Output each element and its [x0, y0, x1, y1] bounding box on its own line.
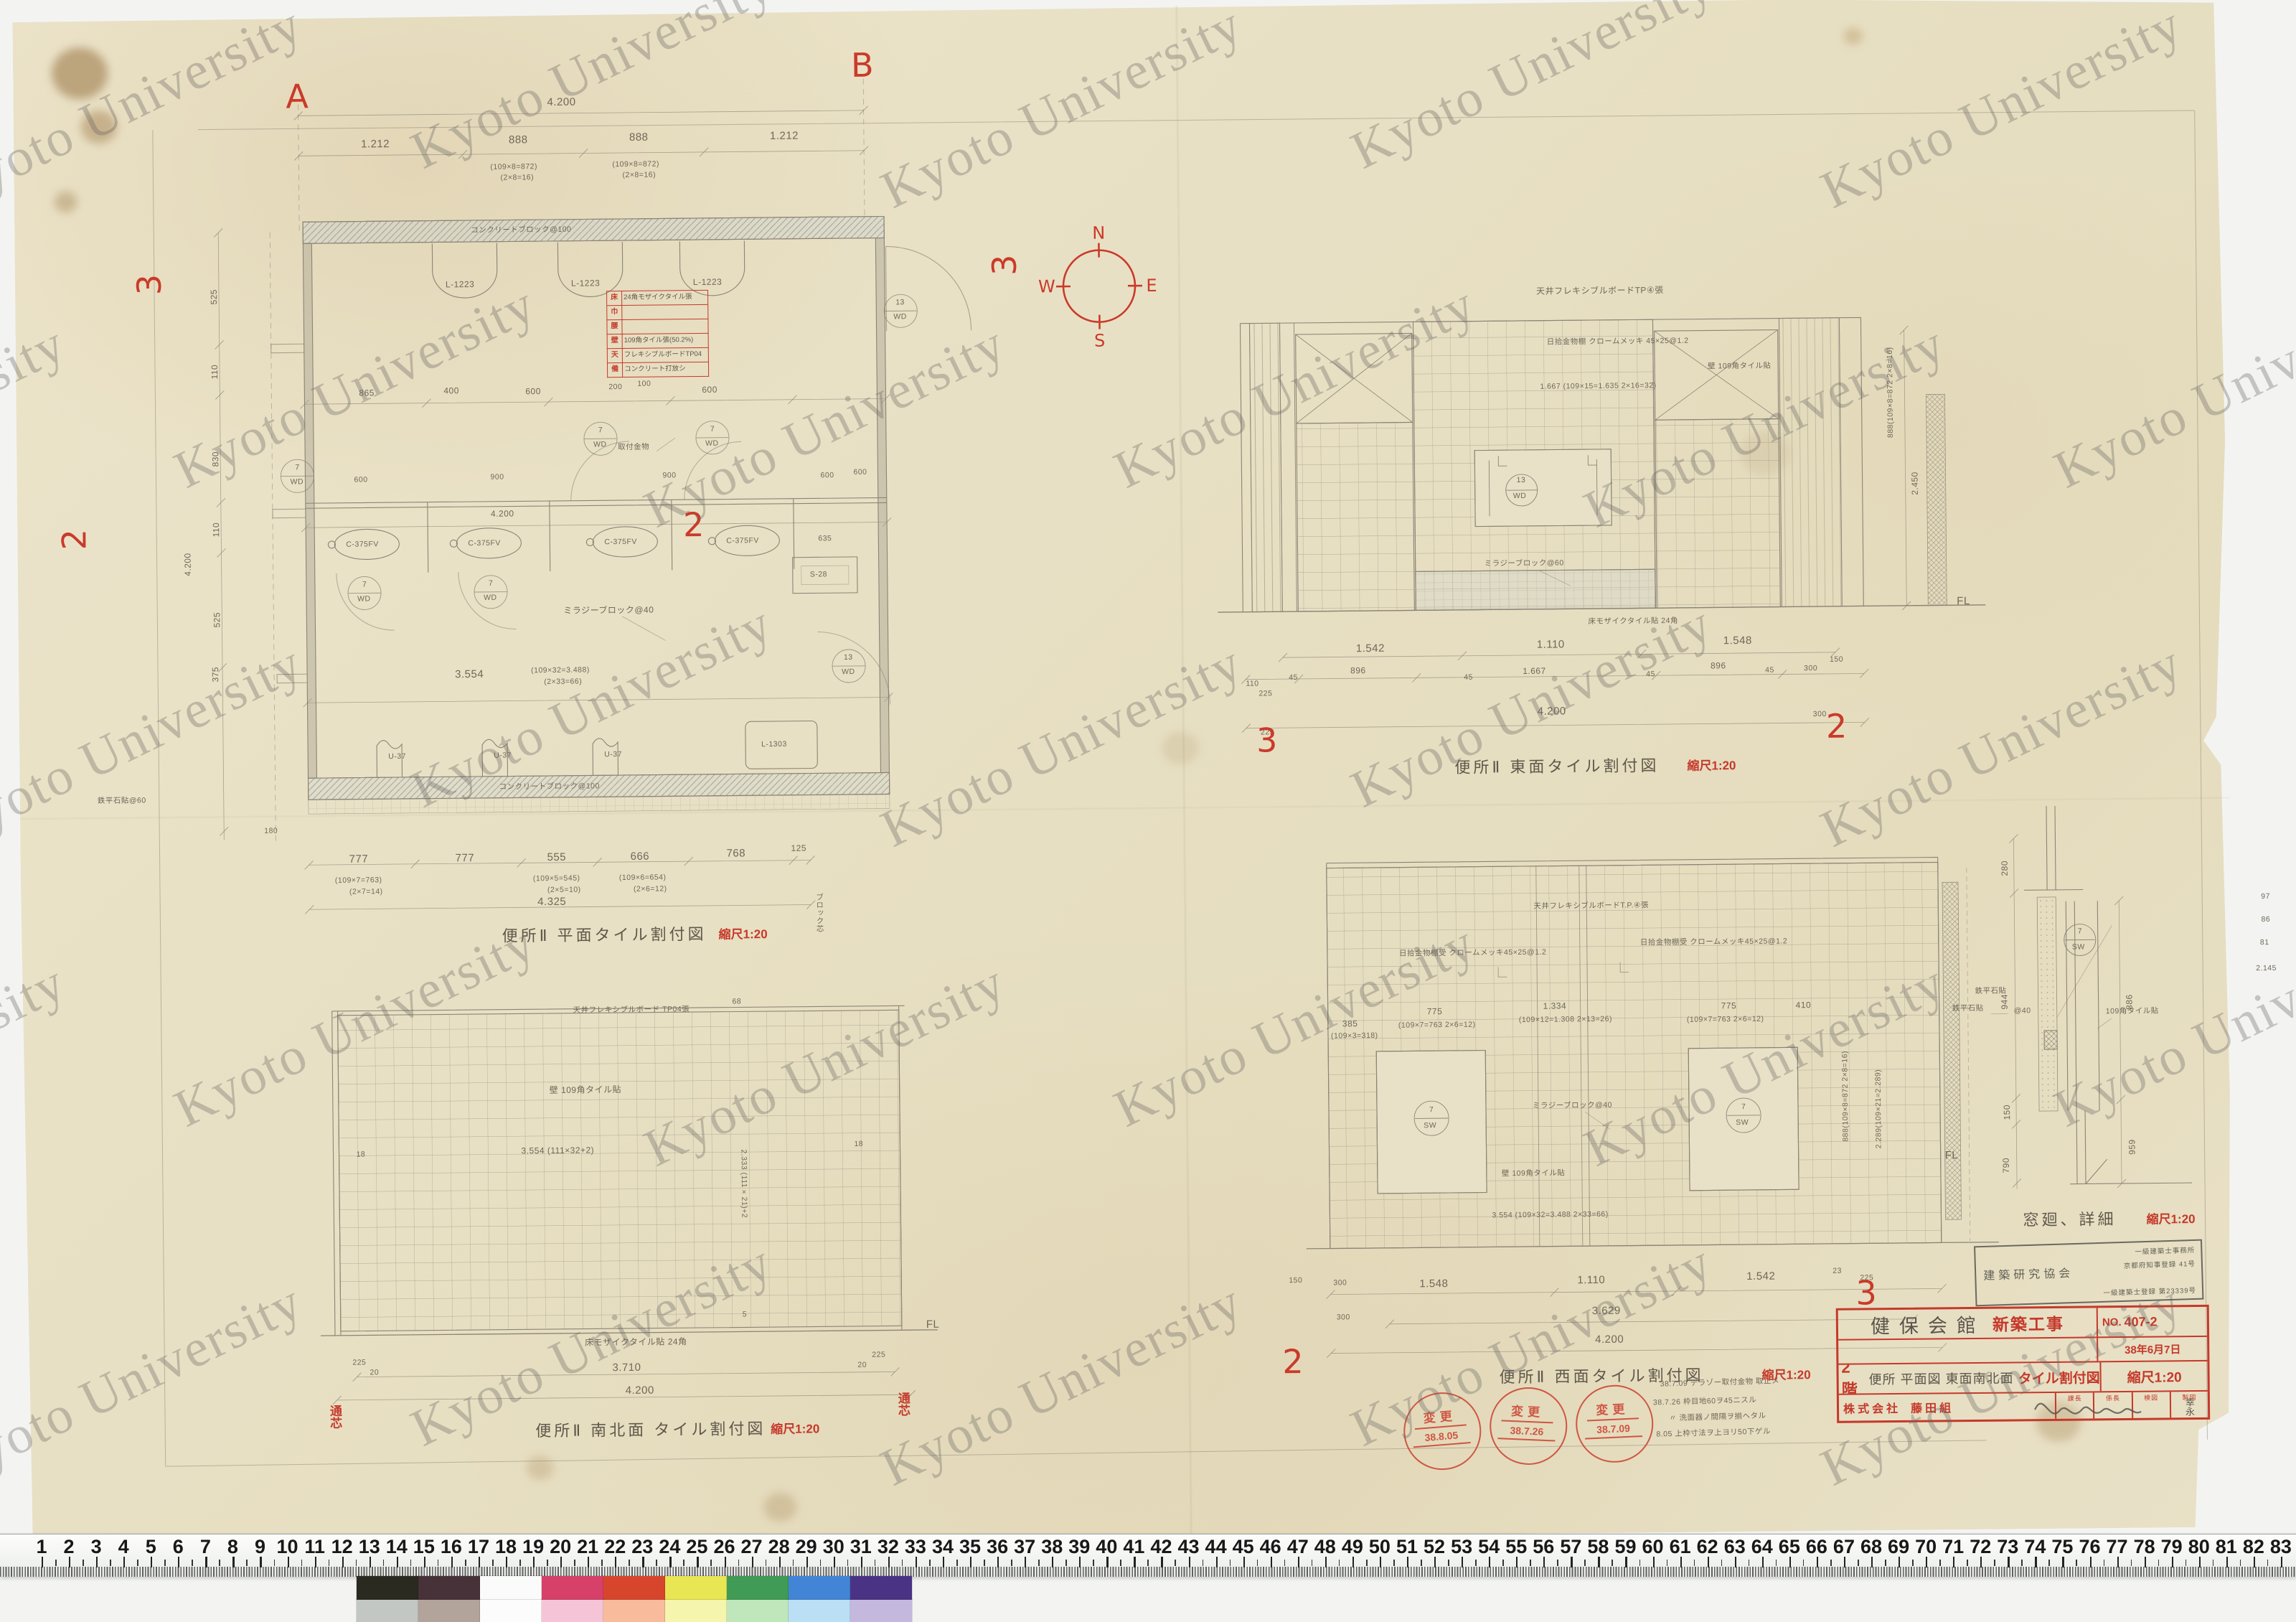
fixture-label: U-37	[388, 752, 406, 761]
ruler-half-tick	[383, 1560, 385, 1566]
ruler-half-tick	[766, 1560, 767, 1566]
fixture-label: L-1223	[571, 278, 601, 288]
color-patch	[850, 1600, 912, 1622]
fixture-label: S-28	[810, 570, 827, 578]
ruler-cm-tick	[1953, 1557, 1954, 1567]
ruler-cm-tick	[1516, 1557, 1518, 1567]
ruler-half-tick	[2158, 1560, 2160, 1566]
ruler-half-tick	[219, 1560, 220, 1566]
schedule-row: 壁109角タイル張(50.2%)	[607, 334, 709, 349]
ruler-half-tick	[2048, 1560, 2050, 1566]
schedule-header: 備	[608, 363, 623, 377]
note-label: 取付金物	[618, 441, 649, 452]
ruler-cm-tick	[1899, 1557, 1900, 1567]
scale-label: 縮尺1:20	[2146, 1209, 2195, 1227]
ruler-half-tick	[2267, 1560, 2269, 1566]
ruler-cm-tick	[1489, 1557, 1490, 1567]
ruler-half-tick	[1339, 1560, 1340, 1566]
door-tag: SW	[1736, 1118, 1749, 1127]
ruler-half-tick	[656, 1560, 657, 1566]
door-tag: SW	[2072, 942, 2085, 951]
ruler-cm-tick	[669, 1557, 671, 1567]
dim-label: 944	[2000, 994, 2010, 1010]
ruler-cm-tick	[1735, 1557, 1736, 1567]
dim-label: 1.110	[1577, 1274, 1605, 1286]
ruler-half-tick	[410, 1560, 412, 1566]
ruler-half-tick	[820, 1560, 822, 1566]
ruler-half-tick	[1694, 1560, 1695, 1566]
color-patch	[542, 1600, 603, 1622]
dim-label: 110	[210, 365, 220, 380]
ruler-half-tick	[2213, 1560, 2214, 1566]
drawing-caption: 便所Ⅱ 南北面 タイル割付図	[535, 1416, 766, 1441]
ruler-half-tick	[1776, 1560, 1777, 1566]
grid-marker-a: A	[286, 77, 309, 116]
dim-label: 768	[726, 847, 745, 859]
dim-label: 200	[608, 383, 622, 391]
drafter-signature: 幸永	[2183, 1397, 2196, 1416]
ruler-cm-tick	[1025, 1557, 1026, 1567]
note-label: ミラジーブロック@40	[563, 604, 654, 617]
ruler-cm-tick	[725, 1557, 726, 1567]
ruler-half-tick	[1530, 1560, 1531, 1566]
no-label: NO.	[2102, 1316, 2122, 1328]
margin-number: 81	[2260, 938, 2269, 947]
fixture-label: C-375FV	[604, 538, 637, 546]
ruler-cm-tick	[1079, 1557, 1081, 1567]
ruler-cm-tick	[205, 1557, 207, 1567]
color-patch	[727, 1600, 789, 1622]
section-marker-2: 2	[683, 505, 705, 544]
color-patch	[665, 1600, 727, 1622]
section-marker-3: 3	[1256, 721, 1278, 759]
ruler-half-tick	[1584, 1560, 1586, 1566]
ruler-half-tick	[1257, 1560, 1258, 1566]
ruler-cm-tick	[1926, 1557, 1927, 1567]
ruler-half-tick	[1858, 1560, 1859, 1566]
dim-label: @40	[2014, 1006, 2031, 1015]
finish-schedule-stamp: 床24角モザイクタイル張巾腰壁109角タイル張(50.2%)天フレキシブルボード…	[606, 290, 709, 378]
compass-e: E	[1146, 276, 1157, 296]
paper-sheet-layer: A B 3 3 2 2 3 2 2 3 N E S W 4.200 1.212 …	[0, 0, 2296, 1622]
dim-calc: (2×8=16)	[500, 173, 534, 182]
ruler-half-tick	[329, 1560, 330, 1566]
scale-label: 縮尺1:20	[1761, 1364, 1810, 1383]
dim-calc: (109×8=872)	[490, 162, 537, 172]
dim-label: 375	[210, 667, 220, 683]
fl-label: FL	[1957, 595, 1970, 607]
dim-label: 600	[354, 475, 367, 484]
dim-label: 5	[743, 1310, 747, 1318]
dim-label: 888	[629, 131, 649, 144]
ruler-half-tick	[738, 1560, 740, 1566]
ruler-cm-tick	[834, 1557, 835, 1567]
ruler-half-tick	[547, 1560, 548, 1566]
ruler-half-tick	[1393, 1560, 1395, 1566]
revision-stamp-date: 38.8.05	[1412, 1428, 1470, 1448]
dim-label: 410	[1796, 1000, 1812, 1010]
door-number: 7	[1741, 1102, 1746, 1111]
ruler-half-tick	[1749, 1560, 1750, 1566]
dim-label: 600	[820, 471, 834, 479]
ruler-half-tick	[1448, 1560, 1449, 1566]
color-patch	[603, 1600, 665, 1622]
schedule-header: 壁	[608, 334, 623, 348]
door-number: 7	[2078, 927, 2082, 936]
dim-label: 110	[1246, 680, 1258, 688]
ruler-cm-tick	[1708, 1557, 1709, 1567]
note-label: 天井フレキシブルボード TP04張	[573, 1003, 690, 1016]
section-marker-2: 2	[1826, 707, 1848, 746]
margin-number: 86	[2261, 915, 2270, 924]
dim-label: 4.200	[1595, 1333, 1624, 1346]
dim-label: 600	[702, 385, 717, 395]
note-label: 天井フレキシブルボードT.P.④張	[1533, 899, 1649, 911]
ruler-cm-tick	[288, 1557, 289, 1567]
color-patch	[665, 1576, 727, 1600]
note-label: 壁 109角タイル貼	[1502, 1167, 1566, 1178]
dim-label: 45	[1765, 666, 1774, 675]
ruler-half-tick	[83, 1560, 84, 1566]
ruler-number: 83	[2265, 1536, 2296, 1558]
color-patch	[789, 1576, 850, 1600]
ruler-cm-tick	[560, 1557, 562, 1567]
schedule-value: 24角モザイクタイル張	[622, 291, 707, 305]
ruler-cm-tick	[370, 1557, 371, 1567]
ruler-half-tick	[1011, 1560, 1012, 1566]
dim-label: 666	[630, 850, 649, 863]
dim-calc: (2×5=10)	[547, 886, 581, 894]
dim-calc: 888(109×8=872 2×8=16)	[1886, 347, 1895, 438]
color-patch	[789, 1600, 850, 1622]
ruler-cm-tick	[1134, 1557, 1135, 1567]
section-marker-3: 3	[1855, 1273, 1877, 1312]
office-line: 一級建築士事務所	[2135, 1244, 2195, 1257]
dim-label: 1.110	[1537, 638, 1565, 650]
ruler-half-tick	[1366, 1560, 1368, 1566]
color-patch	[850, 1576, 912, 1600]
ruler-cm-tick	[123, 1557, 125, 1567]
color-patch	[418, 1600, 480, 1622]
ruler-cm-tick	[2090, 1557, 2092, 1567]
grid-marker-b: B	[851, 46, 874, 85]
ruler-half-tick	[902, 1560, 903, 1566]
door-tag: WD	[357, 594, 371, 603]
dim-label: 1.548	[1723, 634, 1752, 647]
ruler-half-tick	[2240, 1560, 2241, 1566]
dim-label: 896	[1711, 660, 1726, 670]
dim-label: 45	[1464, 673, 1473, 682]
subject-text: 便所 平面図 東面南北面	[1868, 1368, 2013, 1388]
margin-number: 2.145	[2256, 964, 2277, 972]
dim-label: 180	[264, 827, 278, 835]
dim-label: 4.200	[1538, 705, 1566, 717]
ruler-half-tick	[1421, 1560, 1422, 1566]
ruler-cm-tick	[1298, 1557, 1299, 1567]
color-patch	[480, 1576, 542, 1600]
ruler-cm-tick	[1571, 1557, 1572, 1567]
ruler-cm-tick	[533, 1557, 535, 1567]
ruler-half-tick	[793, 1560, 794, 1566]
ruler-half-tick	[1312, 1560, 1313, 1566]
dim-label: 400	[443, 385, 459, 395]
ruler-half-tick	[1203, 1560, 1204, 1566]
fixture-label: L-1223	[693, 277, 723, 287]
note-label: 床モザイクタイル貼 24角	[1588, 615, 1678, 627]
dim-label: 1.667	[1523, 666, 1546, 676]
dim-calc: 3.554 (109×32=3.488 2×33=66)	[1492, 1210, 1608, 1220]
ruler-half-tick	[2021, 1560, 2023, 1566]
dim-label: 385	[1342, 1018, 1358, 1028]
schedule-value	[622, 319, 707, 334]
schedule-header: 天	[608, 349, 623, 362]
dim-calc: (2×7=14)	[349, 887, 383, 896]
section-marker-2: 2	[55, 529, 93, 550]
ruler-cm-tick	[424, 1557, 425, 1567]
dim-calc: (109×12=1.308 2×13=26)	[1519, 1015, 1612, 1024]
color-patch	[418, 1576, 480, 1600]
drafter-cell: 製図 幸永	[2171, 1392, 2208, 1417]
ruler-half-tick	[465, 1560, 466, 1566]
ruler-half-tick	[2076, 1560, 2077, 1566]
ruler-half-tick	[1803, 1560, 1805, 1566]
ruler-half-tick	[1120, 1560, 1121, 1566]
ruler-cm-tick	[1680, 1557, 1682, 1567]
note-label: 天井フレキシブルボードTP④張	[1536, 283, 1664, 297]
ruler-half-tick	[2104, 1560, 2105, 1566]
dim-label: 865	[359, 388, 375, 398]
ruler-cm-tick	[642, 1557, 644, 1567]
ruler-cm-tick	[2035, 1557, 2036, 1567]
ruler-cm-tick	[232, 1557, 234, 1567]
ruler-cm-tick	[1434, 1557, 1436, 1567]
grid-centerline-label: 通芯	[894, 1392, 912, 1416]
ruler-half-tick	[519, 1560, 521, 1566]
ruler-cm-tick	[2117, 1557, 2119, 1567]
door-tag: WD	[705, 439, 719, 448]
ruler-cm-tick	[916, 1557, 917, 1567]
compass-n: N	[1092, 223, 1105, 243]
company-name: 藤田組	[1911, 1398, 1954, 1416]
ruler-cm-tick	[943, 1557, 944, 1567]
revision-stamp-date: 38.7.26	[1497, 1424, 1556, 1441]
scale-label: 縮尺1:20	[718, 924, 767, 942]
dim-label: 100	[637, 380, 651, 388]
dim-label: 300	[1804, 664, 1817, 672]
ruler-half-tick	[492, 1560, 494, 1566]
scale-label: 縮尺1:20	[1687, 755, 1736, 774]
door-tag: SW	[1424, 1121, 1436, 1130]
dim-label: 900	[662, 471, 676, 479]
ruler-half-tick	[1557, 1560, 1558, 1566]
schedule-value: フレキシブルボードTP04	[623, 348, 708, 362]
ruler-cm-tick	[2008, 1557, 2009, 1567]
fixture-label: C-375FV	[726, 536, 759, 545]
office-line: 京都府知事登録 41号	[2124, 1258, 2196, 1270]
ruler-half-tick	[984, 1560, 985, 1566]
dim-calc: 1.667 (109×15=1.635 2×16=32)	[1540, 381, 1656, 391]
ruler-cm-tick	[1106, 1557, 1108, 1567]
ruler-cm-tick	[96, 1557, 98, 1567]
ruler-cm-tick	[2062, 1557, 2064, 1567]
ruler-cm-tick	[615, 1557, 616, 1567]
ruler-cm-tick	[2226, 1557, 2228, 1567]
scale-label: 縮尺1:20	[771, 1418, 819, 1437]
scan-ruler: 1234567891011121314151617181920212223242…	[0, 1534, 2296, 1577]
ruler-cm-tick	[697, 1557, 698, 1567]
schedule-value	[622, 305, 707, 319]
schedule-value: コンクリート打放シ	[623, 362, 708, 377]
west-elevation-linework	[1303, 857, 2000, 1358]
compass-rose: N E S W	[1035, 222, 1165, 353]
note-label: ブロック芯	[814, 893, 826, 932]
dim-calc: (2×6=12)	[634, 884, 667, 893]
ruler-cm-tick	[1352, 1557, 1354, 1567]
ruler-half-tick	[1967, 1560, 1968, 1566]
dim-label: 225	[872, 1351, 885, 1359]
color-patch	[603, 1576, 665, 1600]
dim-label: 600	[853, 468, 867, 477]
ruler-cm-tick	[1817, 1557, 1818, 1567]
ruler-cm-tick	[1598, 1557, 1599, 1567]
ruler-cm-tick	[1462, 1557, 1463, 1567]
note-label: ミラジーブロック@60	[1485, 557, 1564, 568]
dim-label: 1.212	[770, 130, 799, 142]
ruler-half-tick	[1639, 1560, 1641, 1566]
ruler-cm-tick	[779, 1557, 781, 1567]
dim-label: 3.629	[1592, 1305, 1621, 1317]
dim-calc: (109×3=318)	[1331, 1031, 1378, 1041]
ruler-cm-tick	[2281, 1557, 2282, 1567]
dim-calc: 888(109×8=872 2×8=16)	[1840, 1051, 1850, 1142]
schedule-row: 巾	[606, 305, 708, 320]
ruler-cm-tick	[1871, 1557, 1873, 1567]
ruler-half-tick	[1230, 1560, 1231, 1566]
dim-label: 18	[356, 1150, 365, 1158]
dim-label: 225	[1258, 689, 1272, 698]
color-patch	[357, 1576, 418, 1600]
ruler-cm-tick	[479, 1557, 480, 1567]
ruler-half-tick	[601, 1560, 603, 1566]
ruler-half-tick	[956, 1560, 958, 1566]
dim-label: 3.710	[612, 1361, 641, 1374]
ruler-cm-tick	[1271, 1557, 1272, 1567]
ruler-half-tick	[929, 1560, 931, 1566]
dim-label: 4.200	[547, 96, 575, 108]
project-name: 健保会館	[1871, 1309, 1985, 1339]
margin-number: 97	[2261, 892, 2270, 901]
ruler-cm-tick	[1052, 1557, 1053, 1567]
compass-s: S	[1094, 331, 1106, 351]
date-cell: 38年6月7日	[2098, 1337, 2207, 1361]
dim-label: 1.334	[1543, 1000, 1567, 1011]
ruler-cm-tick	[315, 1557, 316, 1567]
ruler-half-tick	[164, 1560, 166, 1566]
door-tag: WD	[290, 477, 304, 486]
dim-calc: (2×8=16)	[622, 171, 656, 179]
ruler-cm-tick	[2254, 1557, 2255, 1567]
revision-stamp-label: 変更	[1413, 1405, 1467, 1430]
ruler-half-tick	[356, 1560, 357, 1566]
ruler-half-tick	[1830, 1560, 1832, 1566]
fl-label: FL	[926, 1318, 940, 1331]
ruler-half-tick	[2131, 1560, 2132, 1566]
ruler-cm-tick	[397, 1557, 398, 1567]
ruler-half-tick	[1284, 1560, 1286, 1566]
schedule-row: 床24角モザイクタイル張	[606, 290, 708, 306]
spacer-cell	[1838, 1338, 2098, 1363]
ruler-cm-tick	[861, 1557, 862, 1567]
color-patch	[357, 1600, 418, 1622]
floor-label: 2階	[1841, 1362, 1865, 1394]
revision-stamp-label: 変更	[1586, 1398, 1639, 1421]
schedule-row: 備コンクリート打放シ	[607, 362, 709, 378]
office-name: 建築研究協会	[1983, 1263, 2074, 1283]
dim-label: 600	[525, 386, 541, 396]
ruler-cm-tick	[888, 1557, 890, 1567]
ruler-cm-tick	[997, 1557, 999, 1567]
window-detail-linework	[1989, 805, 2192, 1189]
dim-calc: (109×6=654)	[619, 873, 667, 882]
dim-label: 635	[818, 534, 832, 543]
section-marker-3: 3	[985, 254, 1024, 276]
door-number: 13	[844, 653, 853, 662]
note-label: 壁 109角タイル貼	[550, 1083, 622, 1096]
dim-label: 775	[1427, 1006, 1443, 1016]
ruler-cm-tick	[451, 1557, 453, 1567]
dim-label: 2.450	[1910, 472, 1920, 495]
ruler-half-tick	[710, 1560, 712, 1566]
project-cell: 健保会館 新築工事	[1838, 1308, 2098, 1339]
dim-label: 110	[211, 522, 221, 538]
ruler-cm-tick	[151, 1557, 152, 1567]
ruler-cm-tick	[42, 1557, 43, 1567]
dim-label: 777	[456, 852, 475, 864]
ruler-half-tick	[438, 1560, 439, 1566]
ruler-cm-tick	[260, 1557, 261, 1567]
ruler-cm-tick	[506, 1557, 507, 1567]
drawing-caption: 窓廻、詳細	[2023, 1206, 2116, 1230]
door-tag: WD	[484, 594, 497, 602]
ruler-half-tick	[301, 1560, 303, 1566]
ruler-cm-tick	[1243, 1557, 1245, 1567]
fixture-label: C-375FV	[468, 539, 501, 548]
ruler-half-tick	[274, 1560, 276, 1566]
door-number: 7	[362, 580, 367, 589]
dim-label: 23	[1832, 1267, 1842, 1275]
dim-label: 150	[2002, 1105, 2012, 1120]
ruler-half-tick	[137, 1560, 138, 1566]
ruler-half-tick	[875, 1560, 876, 1566]
color-patch	[542, 1576, 603, 1600]
ruler-half-tick	[246, 1560, 248, 1566]
ruler-half-tick	[1502, 1560, 1504, 1566]
dim-label: 777	[349, 853, 369, 865]
ruler-half-tick	[1912, 1560, 1914, 1566]
note-label: 109角タイル貼	[2106, 1005, 2159, 1016]
grid-centerline-label: 通芯	[326, 1405, 344, 1429]
ruler-half-tick	[1885, 1560, 1886, 1566]
drawing-number-cell: NO. 407-2	[2098, 1307, 2207, 1336]
dim-label: 4.200	[491, 508, 514, 518]
ruler-half-tick	[55, 1560, 57, 1566]
schedule-header: 床	[607, 291, 622, 305]
dim-label: 1.212	[361, 138, 390, 150]
office-line: 一級建築士登録 第23339号	[2103, 1285, 2196, 1298]
dim-label: 525	[212, 612, 222, 628]
note-label: 床モザイクタイル貼 24角	[585, 1335, 687, 1348]
company-prefix: 株式会社	[1843, 1399, 1901, 1417]
